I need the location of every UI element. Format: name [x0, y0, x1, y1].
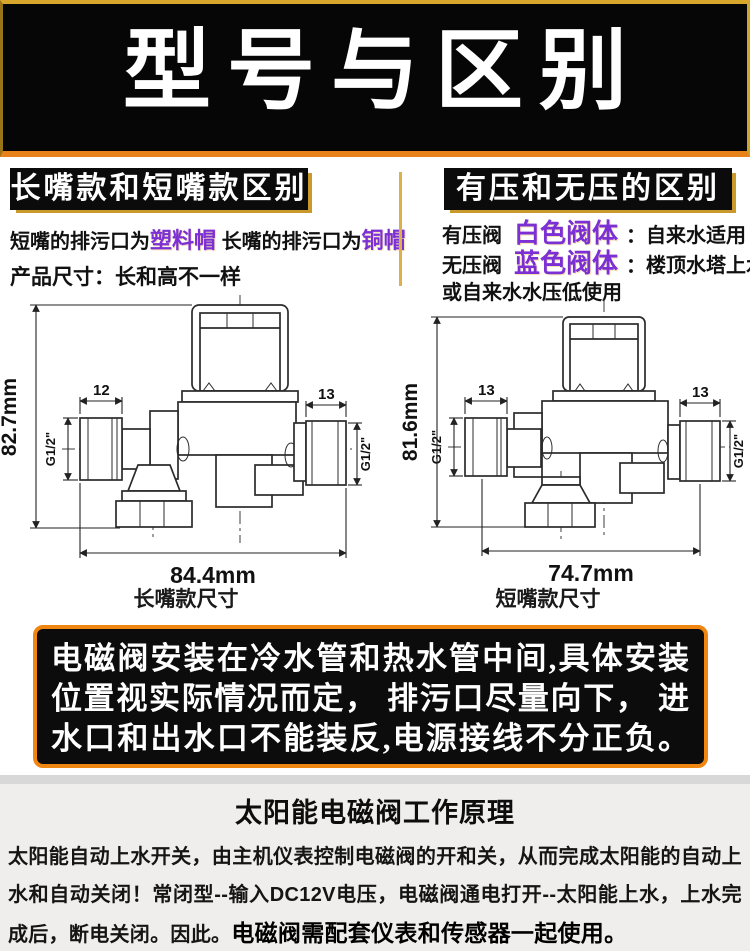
width-dim-label: 84.4mm [170, 562, 256, 588]
valve-name: 无压阀 [442, 253, 502, 280]
thread-label-right: G1/2" [358, 437, 373, 471]
diagram-caption: 长嘴款尺寸 [134, 587, 239, 611]
dimension-diagrams: 12 13 G1/2" G1/2" 82.7mm 84.4m [0, 295, 750, 615]
dim-label-13: 13 [318, 386, 335, 403]
inlet-port [80, 418, 122, 480]
height-dim-label: 82.7mm [0, 378, 21, 456]
thread-label-right: G1/2" [731, 434, 746, 468]
text-segment: 短嘴的排污口为 [10, 231, 150, 253]
pressure-row-blue: 无压阀 蓝色阀体 ： 楼顶水塔上水 [442, 250, 750, 280]
principle-heading: 太阳能电磁阀工作原理 [8, 791, 742, 830]
text-segment: 长嘴的排污口为 [216, 231, 362, 253]
dim-label-13-left: 13 [478, 382, 495, 399]
diagram-caption: 短嘴款尺寸 [496, 587, 601, 611]
pressure-compare-column: 有压和无压的区别 有压阀 白色阀体 ： 自来水适用 无压阀 蓝色阀体 ： 楼顶水… [408, 168, 750, 306]
height-dim-label: 81.6mm [399, 383, 422, 461]
working-principle-section: 太阳能电磁阀工作原理 太阳能自动上水开关，由主机仪表控制电磁阀的开和关，从而完成… [0, 775, 750, 951]
pressure-row-white: 有压阀 白色阀体 ： 自来水适用 [442, 220, 750, 250]
nozzle-compare-header: 长嘴款和短嘴款区别 [10, 168, 308, 210]
thread-label-left: G1/2" [43, 432, 58, 466]
nozzle-compare-line1: 短嘴的排污口为塑料帽 长嘴的排污口为铜帽 [10, 223, 396, 255]
valve-use: 楼顶水塔上水 [646, 253, 750, 280]
dim-label-13-right: 13 [692, 384, 709, 401]
page-title: 型号与区别 [123, 29, 643, 127]
principle-text-bold: 电磁阀需配套仪表和传感器一起使用。 [231, 920, 627, 946]
nozzle-compare-column: 长嘴款和短嘴款区别 短嘴的排污口为塑料帽 长嘴的排污口为铜帽 产品尺寸：长和高不… [10, 168, 396, 291]
valve-use: 自来水适用 [646, 223, 746, 250]
title-banner: 型号与区别 [0, 0, 750, 157]
installation-notice-box: 电磁阀安装在冷水管和热水管中间,具体安装 位置视实际情况而定， 排污口尽量向下，… [33, 625, 708, 768]
colon: ： [626, 223, 646, 250]
solenoid-coil [192, 305, 288, 391]
pressure-rows: 有压阀 白色阀体 ： 自来水适用 无压阀 蓝色阀体 ： 楼顶水塔上水 或自来水水… [442, 220, 750, 306]
nozzle-compare-line2: 产品尺寸：长和高不一样 [10, 261, 396, 291]
short-nozzle-diagram: 13 13 G1/2" G1/2" 81.6mm 74.7m [390, 295, 750, 615]
notice-line: 水口和出水口不能装反,电源接线不分正负。 [51, 719, 690, 759]
notice-line: 位置视实际情况而定， 排污口尽量向下， 进 [51, 679, 690, 719]
product-info-page: 型号与区别 长嘴款和短嘴款区别 短嘴的排污口为塑料帽 长嘴的排污口为铜帽 产品尺… [0, 0, 750, 951]
notice-line: 电磁阀安装在冷水管和热水管中间,具体安装 [51, 639, 690, 679]
drain-nozzle [128, 465, 180, 491]
highlight-blue-body: 蓝色阀体 [514, 250, 618, 277]
drain-nozzle [542, 477, 580, 485]
column-divider [399, 172, 402, 286]
colon: ： [626, 253, 646, 280]
highlight-white-body: 白色阀体 [514, 220, 618, 247]
valve-name: 有压阀 [442, 223, 502, 250]
solenoid-coil [563, 317, 645, 391]
long-nozzle-diagram: 12 13 G1/2" G1/2" 82.7mm 84.4m [0, 295, 390, 615]
dim-label-12: 12 [93, 382, 110, 399]
comparison-section: 长嘴款和短嘴款区别 短嘴的排污口为塑料帽 长嘴的排污口为铜帽 产品尺寸：长和高不… [0, 168, 750, 296]
valve-body [178, 402, 296, 455]
highlight-plastic-cap: 塑料帽 [150, 228, 216, 253]
pressure-compare-header: 有压和无压的区别 [444, 168, 732, 210]
principle-body: 太阳能自动上水开关，由主机仪表控制电磁阀的开和关，从而完成太阳能的自动上水和自动… [8, 838, 742, 951]
valve-body [542, 401, 668, 453]
width-dim-label: 74.7mm [548, 560, 634, 586]
